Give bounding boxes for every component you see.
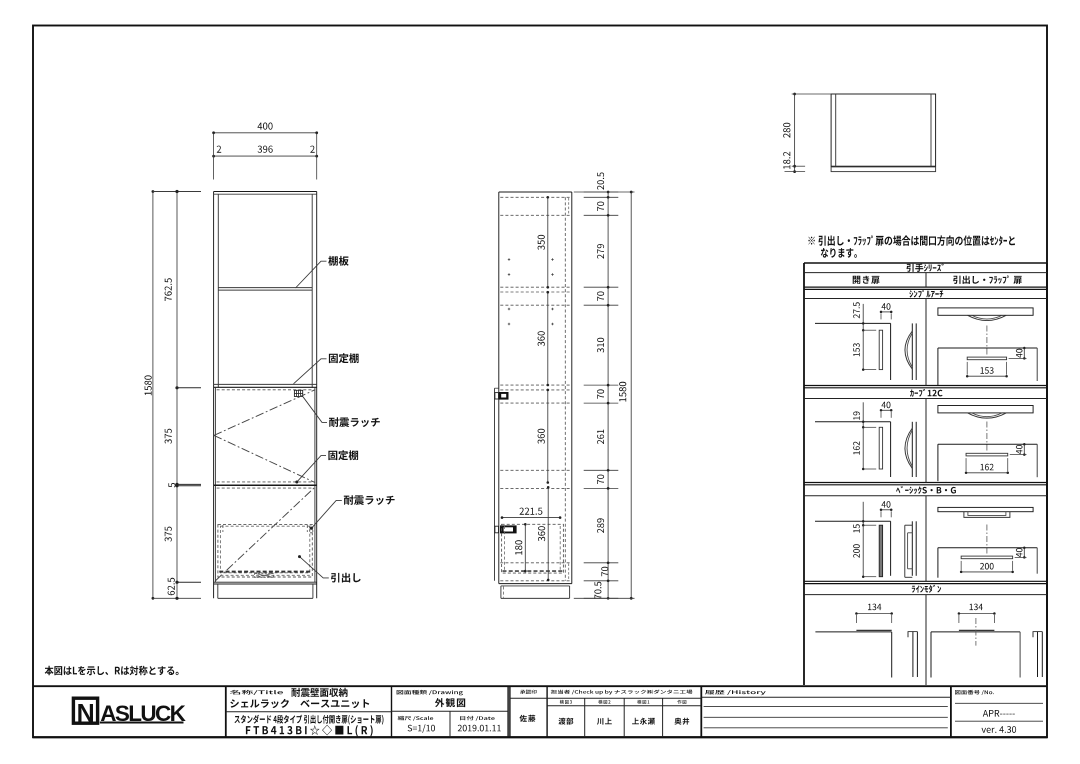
svg-text:N: N: [77, 699, 95, 727]
